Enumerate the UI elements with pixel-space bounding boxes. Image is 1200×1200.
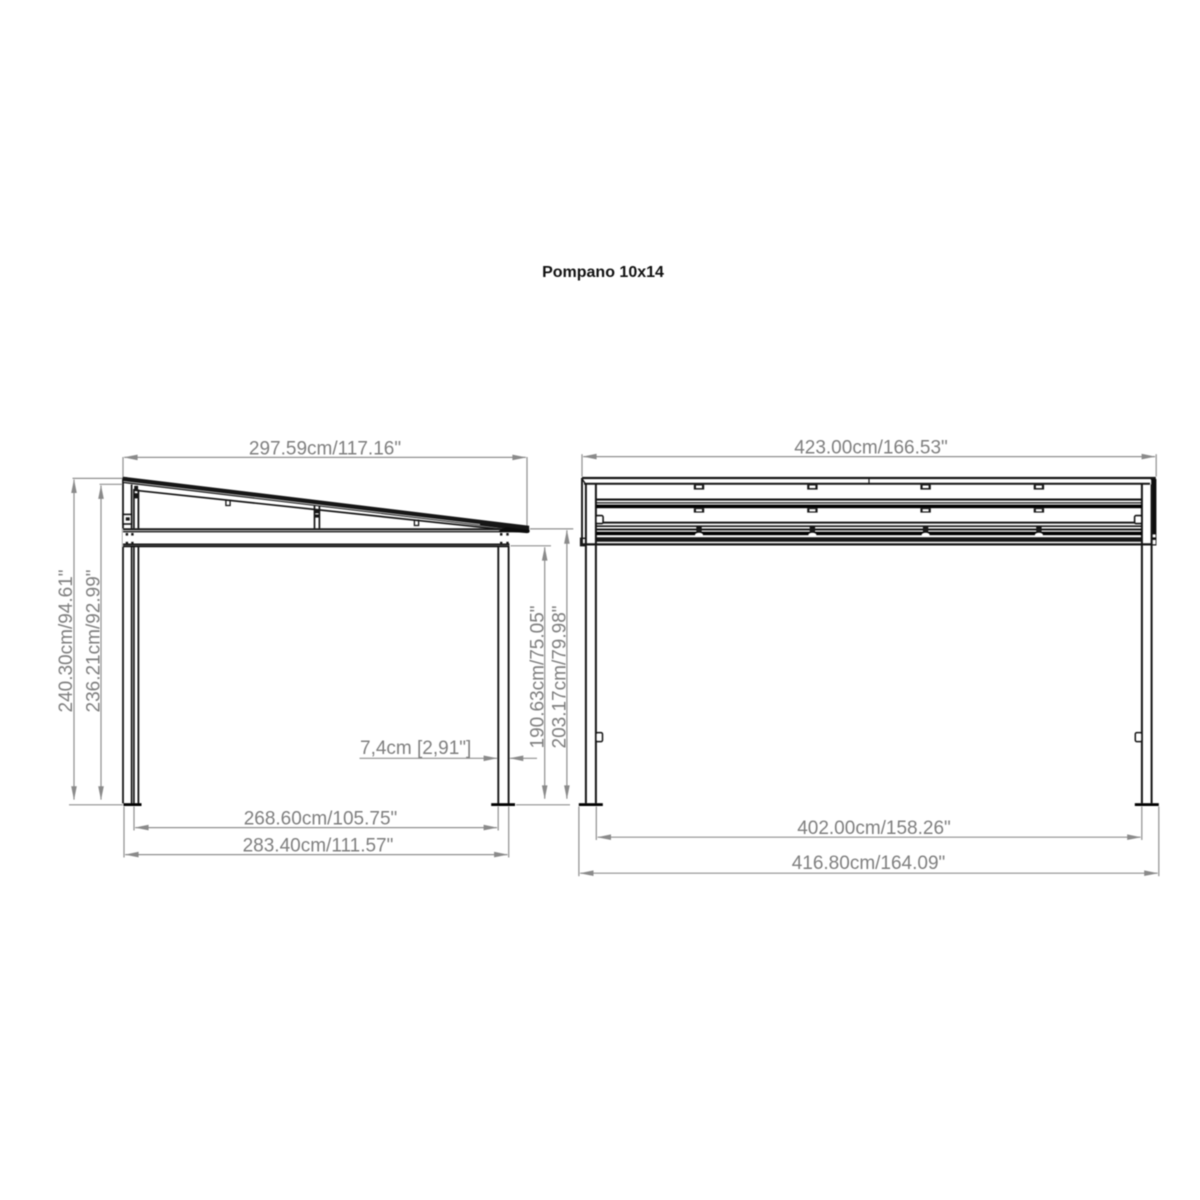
svg-text:268.60cm/105.75": 268.60cm/105.75": [244, 809, 398, 830]
svg-text:240.30cm/94.61": 240.30cm/94.61": [56, 569, 77, 712]
svg-text:236.21cm/92.99": 236.21cm/92.99": [84, 569, 105, 712]
svg-text:190.63cm/75.05": 190.63cm/75.05": [528, 605, 549, 748]
svg-text:Pompano 10x14: Pompano 10x14: [542, 264, 664, 281]
svg-text:283.40cm/111.57": 283.40cm/111.57": [243, 836, 394, 857]
svg-text:423.00cm/166.53": 423.00cm/166.53": [794, 437, 948, 458]
svg-text:203.17cm/79.98": 203.17cm/79.98": [550, 605, 571, 748]
svg-text:402.00cm/158.26": 402.00cm/158.26": [797, 818, 951, 839]
svg-text:297.59cm/117.16": 297.59cm/117.16": [249, 439, 401, 460]
svg-text:416.80cm/164.09": 416.80cm/164.09": [792, 853, 946, 874]
svg-text:7,4cm [2,91"]: 7,4cm [2,91"]: [360, 738, 471, 759]
